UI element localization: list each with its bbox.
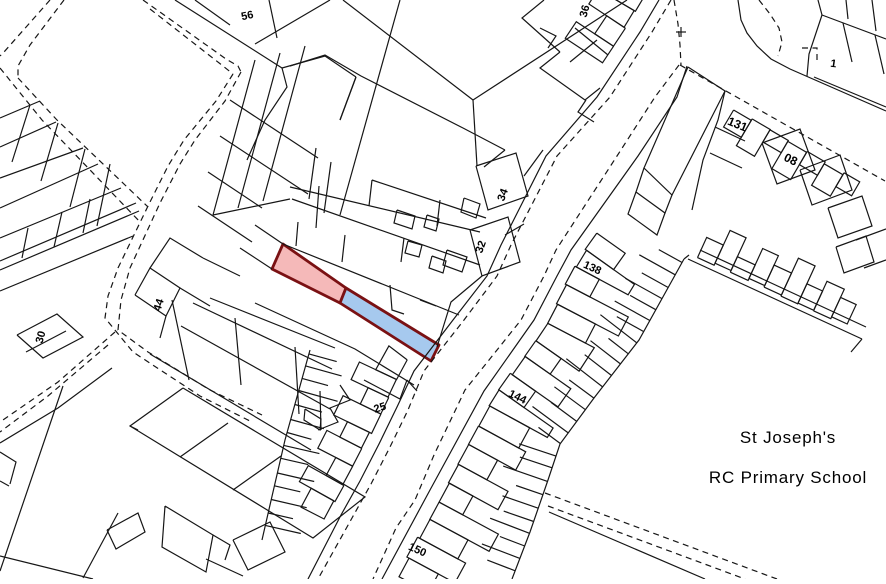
svg-text:RC Primary School: RC Primary School bbox=[709, 468, 867, 487]
svg-text:St Joseph's: St Joseph's bbox=[740, 428, 836, 447]
svg-text:56: 56 bbox=[240, 9, 254, 23]
